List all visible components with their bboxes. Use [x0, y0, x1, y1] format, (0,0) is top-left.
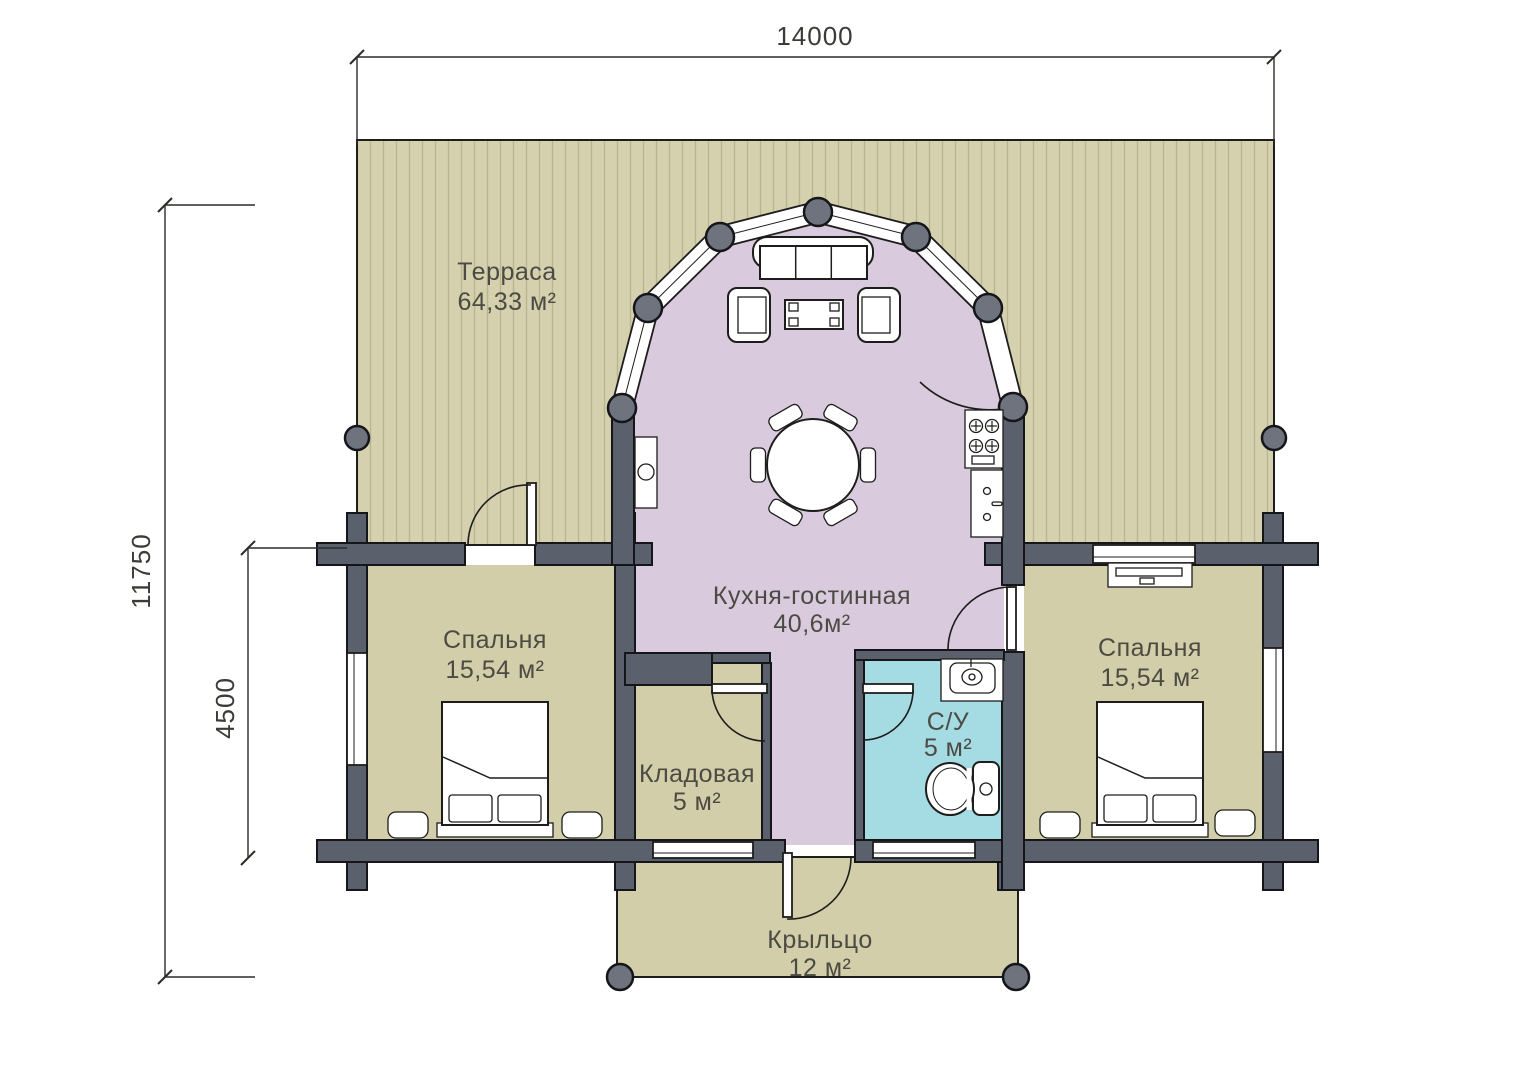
log-post [634, 294, 662, 322]
kitchen-sink-cabinet [971, 470, 1003, 537]
wall-bay-right [1002, 398, 1024, 585]
log-post [804, 198, 832, 226]
dining-set [751, 403, 876, 528]
wall-bay-left [612, 408, 634, 565]
dresser [1108, 563, 1192, 587]
dimension-height-left: 11750 [126, 198, 255, 984]
pillow [1104, 795, 1147, 822]
pillow [1153, 795, 1196, 822]
kitchen-stove [965, 410, 1003, 468]
label-bedroom-right-area: 15,54 м² [1100, 664, 1199, 692]
bed-left [437, 702, 553, 837]
nightstand [1215, 810, 1255, 836]
label-storage-area: 5 м² [673, 788, 721, 816]
dim-label-4500: 4500 [210, 677, 240, 739]
window-bedroom-right-wall [1263, 648, 1283, 752]
bathroom-sink [941, 659, 1003, 701]
armchair-right [858, 288, 900, 342]
floor-plan-page: Терраса 64,33 м² Кухня-гостинная 40,6м² … [0, 0, 1527, 1080]
window-bedroom-right-top [1093, 545, 1195, 563]
label-bathroom-area: 5 м² [924, 734, 972, 762]
label-porch-name: Крыльцо [767, 926, 873, 954]
kitchen-tall-cabinet [635, 437, 657, 508]
porch-post-left [607, 964, 633, 990]
window-storage-bottom [653, 842, 753, 858]
terrace-post-left [345, 426, 369, 450]
dimension-width-top: 14000 [350, 21, 1281, 145]
terrace-post-right [1262, 426, 1286, 450]
label-kitchen-name: Кухня-гостинная [713, 582, 911, 610]
armchair-left [728, 288, 770, 342]
bed-right [1092, 702, 1208, 837]
label-bedroom-left-area: 15,54 м² [445, 656, 544, 684]
wall-bathroom-right [1002, 652, 1024, 890]
dim-label-14000: 14000 [776, 21, 853, 51]
sofa [753, 237, 873, 279]
window-bathroom-bottom [873, 842, 975, 858]
label-bedroom-right-name: Спальня [1098, 634, 1202, 662]
label-terrace-name: Терраса [457, 258, 556, 286]
nightstand [388, 812, 428, 838]
window-bedroom-left-wall [347, 653, 367, 765]
log-post [902, 223, 930, 251]
wall-storage-top [625, 653, 712, 685]
label-kitchen-area: 40,6м² [773, 610, 850, 638]
dining-chair [861, 448, 876, 482]
label-porch-area: 12 м² [789, 954, 852, 982]
floor-plan-drawing: Терраса 64,33 м² Кухня-гостинная 40,6м² … [0, 0, 1527, 1080]
toilet [926, 762, 999, 815]
dimension-inner-left: 4500 [210, 541, 347, 865]
label-bathroom-name: С/У [927, 708, 969, 736]
wall-top-left-a [317, 543, 465, 565]
wall-storage-top-thin [712, 653, 770, 663]
dining-table [767, 419, 859, 511]
nightstand [562, 812, 602, 838]
label-terrace-area: 64,33 м² [457, 288, 556, 316]
pillow [498, 795, 541, 822]
nightstand [1040, 812, 1080, 838]
label-storage-name: Кладовая [639, 760, 755, 788]
pillow [449, 795, 492, 822]
log-post [706, 223, 734, 251]
log-post [974, 294, 1002, 322]
dining-chair [751, 448, 766, 482]
wall-stub [615, 862, 635, 890]
label-bedroom-left-name: Спальня [443, 626, 547, 654]
coffee-table [785, 300, 843, 329]
wall-bedroom-left-storage [615, 513, 635, 890]
log-post [608, 394, 636, 422]
porch-post-right [1003, 964, 1029, 990]
dim-label-11750: 11750 [126, 533, 156, 608]
